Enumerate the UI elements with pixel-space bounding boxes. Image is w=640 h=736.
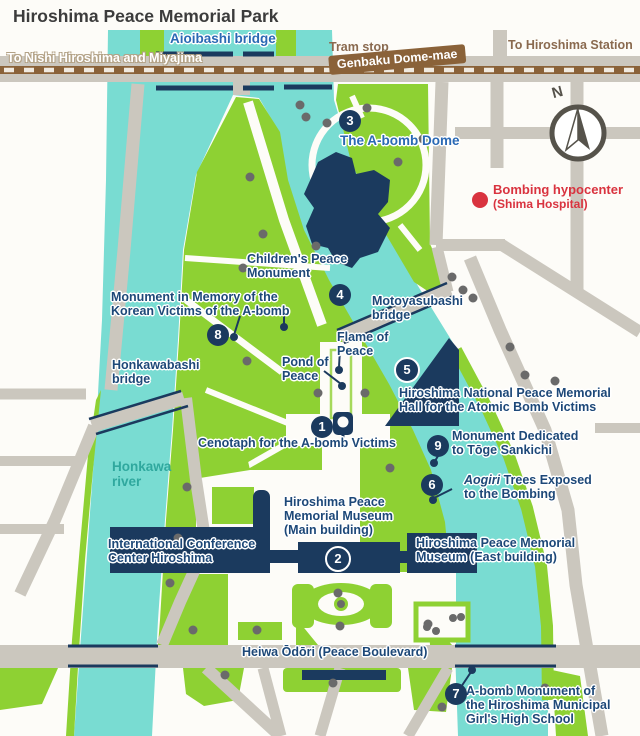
marker-1-cenotaph[interactable]: 1 <box>311 416 333 438</box>
aioibashi-bridge-label: Aioibashi bridge <box>170 32 276 46</box>
axis-structure <box>253 490 270 540</box>
page-title: Hiroshima Peace Memorial Park <box>13 6 279 27</box>
hypocenter-label: Bombing hypocenter(Shima Hospital) <box>493 183 623 211</box>
east-courtyard <box>416 604 468 640</box>
heiwa-odori-label: Heiwa Ōdōri (Peace Boulevard) <box>242 645 427 659</box>
hiroshima-park-map: Hiroshima Peace Memorial Park Aioibashi … <box>0 0 640 736</box>
to-nishi-label: To Nishi Hiroshima and Miyajima <box>7 51 202 65</box>
toge-sankichi-monument-label: Monument Dedicatedto Tōge Sankichi <box>452 429 578 457</box>
memorial-hall-label: Hiroshima National Peace MemorialHall fo… <box>399 386 611 414</box>
marker-5-memorial-hall[interactable]: 5 <box>394 357 420 383</box>
compass-icon <box>552 107 604 159</box>
cenotaph-label: Cenotaph for the A-bomb Victims <box>198 436 396 450</box>
childrens-monument-label: Children's PeaceMonument <box>247 252 347 280</box>
marker-8-korean-monument[interactable]: 8 <box>207 324 229 346</box>
flame-of-peace-label: Flame ofPeace <box>337 330 388 358</box>
honkawa-river-label: Honkawariver <box>112 459 171 489</box>
marker-4-childrens-monument[interactable]: 4 <box>329 284 351 306</box>
marker-7-girls-school[interactable]: 7 <box>445 683 467 705</box>
conference-center-label: International ConferenceCenter Hiroshima <box>108 537 255 565</box>
honkawabashi-bridge-label: Honkawabashibridge <box>112 358 200 386</box>
girls-high-school-monument-label: A-bomb Monument ofthe Hiroshima Municipa… <box>466 684 610 726</box>
marker-2-museum-main[interactable]: 2 <box>325 546 351 572</box>
marker-3-a-bomb-dome[interactable]: 3 <box>339 110 361 132</box>
fountain <box>301 583 381 625</box>
hypocenter-dot <box>472 192 488 208</box>
a-bomb-dome-label: The A-bomb Dome <box>340 134 460 148</box>
median-monument-bar <box>302 670 386 680</box>
pond-of-peace-label: Pond ofPeace <box>282 355 329 383</box>
to-hiroshima-station-label: To Hiroshima Station <box>508 38 633 52</box>
museum-east-label: Hiroshima Peace MemorialMuseum (East bui… <box>416 536 575 564</box>
motoyasubashi-bridge-label: Motoyasubashibridge <box>372 294 463 322</box>
marker-6-aogiri-trees[interactable]: 6 <box>421 474 443 496</box>
aogiri-trees-label: Aogiri Trees Exposed to the Bombing <box>464 473 592 501</box>
marker-9-toge-monument[interactable]: 9 <box>427 435 449 457</box>
museum-main-label: Hiroshima PeaceMemorial Museum(Main buil… <box>284 495 393 537</box>
korean-victims-monument-label: Monument in Memory of theKorean Victims … <box>111 290 290 318</box>
